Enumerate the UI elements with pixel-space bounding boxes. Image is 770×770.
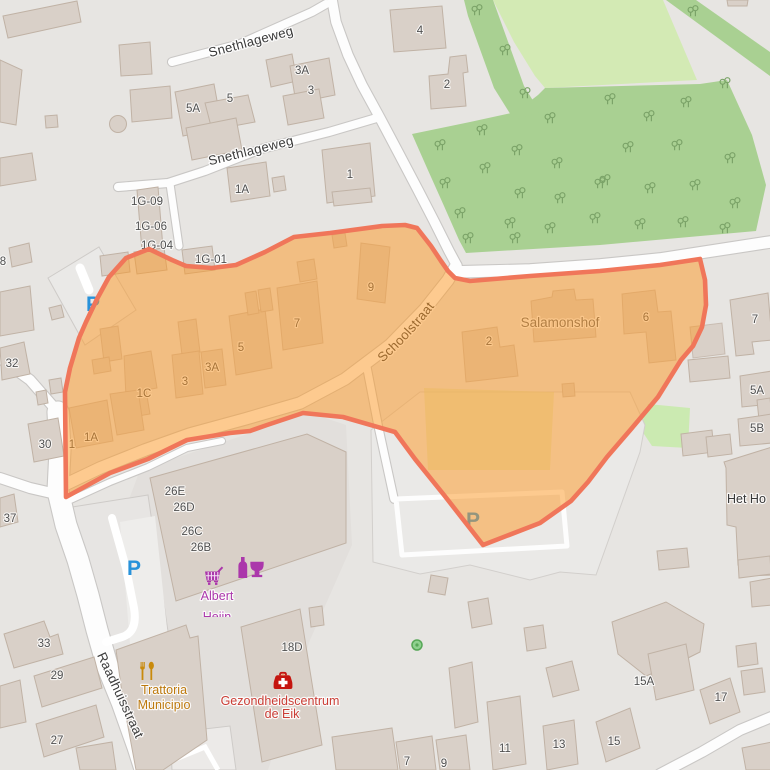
svg-text:3: 3 <box>308 85 314 97</box>
svg-text:1G-01: 1G-01 <box>195 254 227 266</box>
svg-text:26B: 26B <box>191 542 212 554</box>
svg-text:Albert: Albert <box>201 589 234 603</box>
svg-text:32: 32 <box>6 358 19 370</box>
svg-text:5: 5 <box>227 93 233 105</box>
svg-text:5A: 5A <box>750 385 764 397</box>
svg-text:9: 9 <box>441 758 447 770</box>
svg-text:27: 27 <box>51 735 64 747</box>
svg-text:1G-06: 1G-06 <box>135 221 167 233</box>
svg-text:Het Ho: Het Ho <box>727 492 766 506</box>
svg-text:13: 13 <box>553 739 566 751</box>
svg-text:11: 11 <box>499 743 511 755</box>
svg-text:P: P <box>127 557 141 580</box>
svg-text:4: 4 <box>417 25 424 37</box>
svg-text:37: 37 <box>4 513 17 525</box>
svg-text:8: 8 <box>0 256 6 268</box>
svg-text:15: 15 <box>608 736 621 748</box>
svg-text:5A: 5A <box>186 103 200 115</box>
svg-text:Trattoria: Trattoria <box>141 683 187 697</box>
svg-text:7: 7 <box>752 314 758 326</box>
svg-text:7: 7 <box>404 756 410 768</box>
svg-text:1G-09: 1G-09 <box>131 196 163 208</box>
svg-text:1A: 1A <box>235 184 249 196</box>
svg-text:26E: 26E <box>165 486 186 498</box>
svg-text:30: 30 <box>39 439 52 451</box>
svg-text:2: 2 <box>444 79 450 91</box>
svg-text:Municipio: Municipio <box>138 698 191 712</box>
svg-text:26D: 26D <box>173 502 194 514</box>
svg-text:18D: 18D <box>281 642 302 654</box>
svg-text:Gezondheidscentrum: Gezondheidscentrum <box>221 694 340 708</box>
svg-text:17: 17 <box>715 692 728 704</box>
svg-text:3A: 3A <box>295 65 309 77</box>
svg-text:26C: 26C <box>181 526 202 538</box>
svg-text:5B: 5B <box>750 423 764 435</box>
svg-text:15A: 15A <box>634 676 655 688</box>
svg-text:de Eik: de Eik <box>265 707 300 721</box>
svg-text:1: 1 <box>347 169 353 181</box>
svg-text:33: 33 <box>38 638 51 650</box>
svg-text:29: 29 <box>51 670 64 682</box>
